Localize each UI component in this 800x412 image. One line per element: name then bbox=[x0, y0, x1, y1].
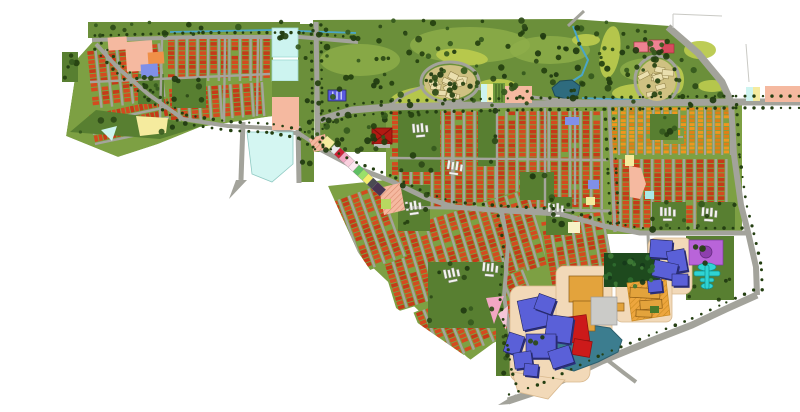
central-pocket-b bbox=[478, 110, 496, 166]
central-pocket-a bbox=[398, 110, 440, 172]
town-green-dot bbox=[650, 306, 659, 313]
central-pocket-c bbox=[520, 172, 554, 200]
pale-yellow-lot bbox=[568, 222, 580, 233]
pond-road-west bbox=[241, 122, 243, 180]
west-street-2 bbox=[224, 38, 225, 122]
east-salmon-lot bbox=[765, 86, 800, 102]
salmon-lot-north bbox=[272, 97, 299, 130]
master-plan-canvas bbox=[0, 0, 800, 412]
master-plan-viewport bbox=[0, 0, 800, 412]
blue-lot-2 bbox=[588, 180, 599, 189]
pond-road-east bbox=[298, 126, 299, 183]
west-salmon-a bbox=[108, 36, 128, 50]
west-street-3 bbox=[257, 36, 258, 116]
yellow-lot-2 bbox=[586, 197, 595, 205]
west-orange-lot bbox=[148, 51, 165, 64]
gray-bigbox bbox=[591, 297, 617, 325]
amber-bld-e3 bbox=[636, 310, 652, 318]
small-cyan-pond bbox=[645, 191, 654, 199]
gap-green bbox=[272, 81, 299, 97]
blue-lot-1 bbox=[565, 117, 579, 125]
sports-field-2 bbox=[272, 60, 298, 81]
lightgreen-square bbox=[381, 199, 391, 209]
east-cyan-strip bbox=[746, 87, 753, 101]
east-yellow-strip bbox=[753, 87, 760, 101]
yellow-lot-3 bbox=[625, 155, 634, 166]
blue-bld-c4 bbox=[672, 274, 688, 286]
blue-bld-b3 bbox=[523, 363, 538, 376]
red-bld-2 bbox=[572, 339, 593, 358]
